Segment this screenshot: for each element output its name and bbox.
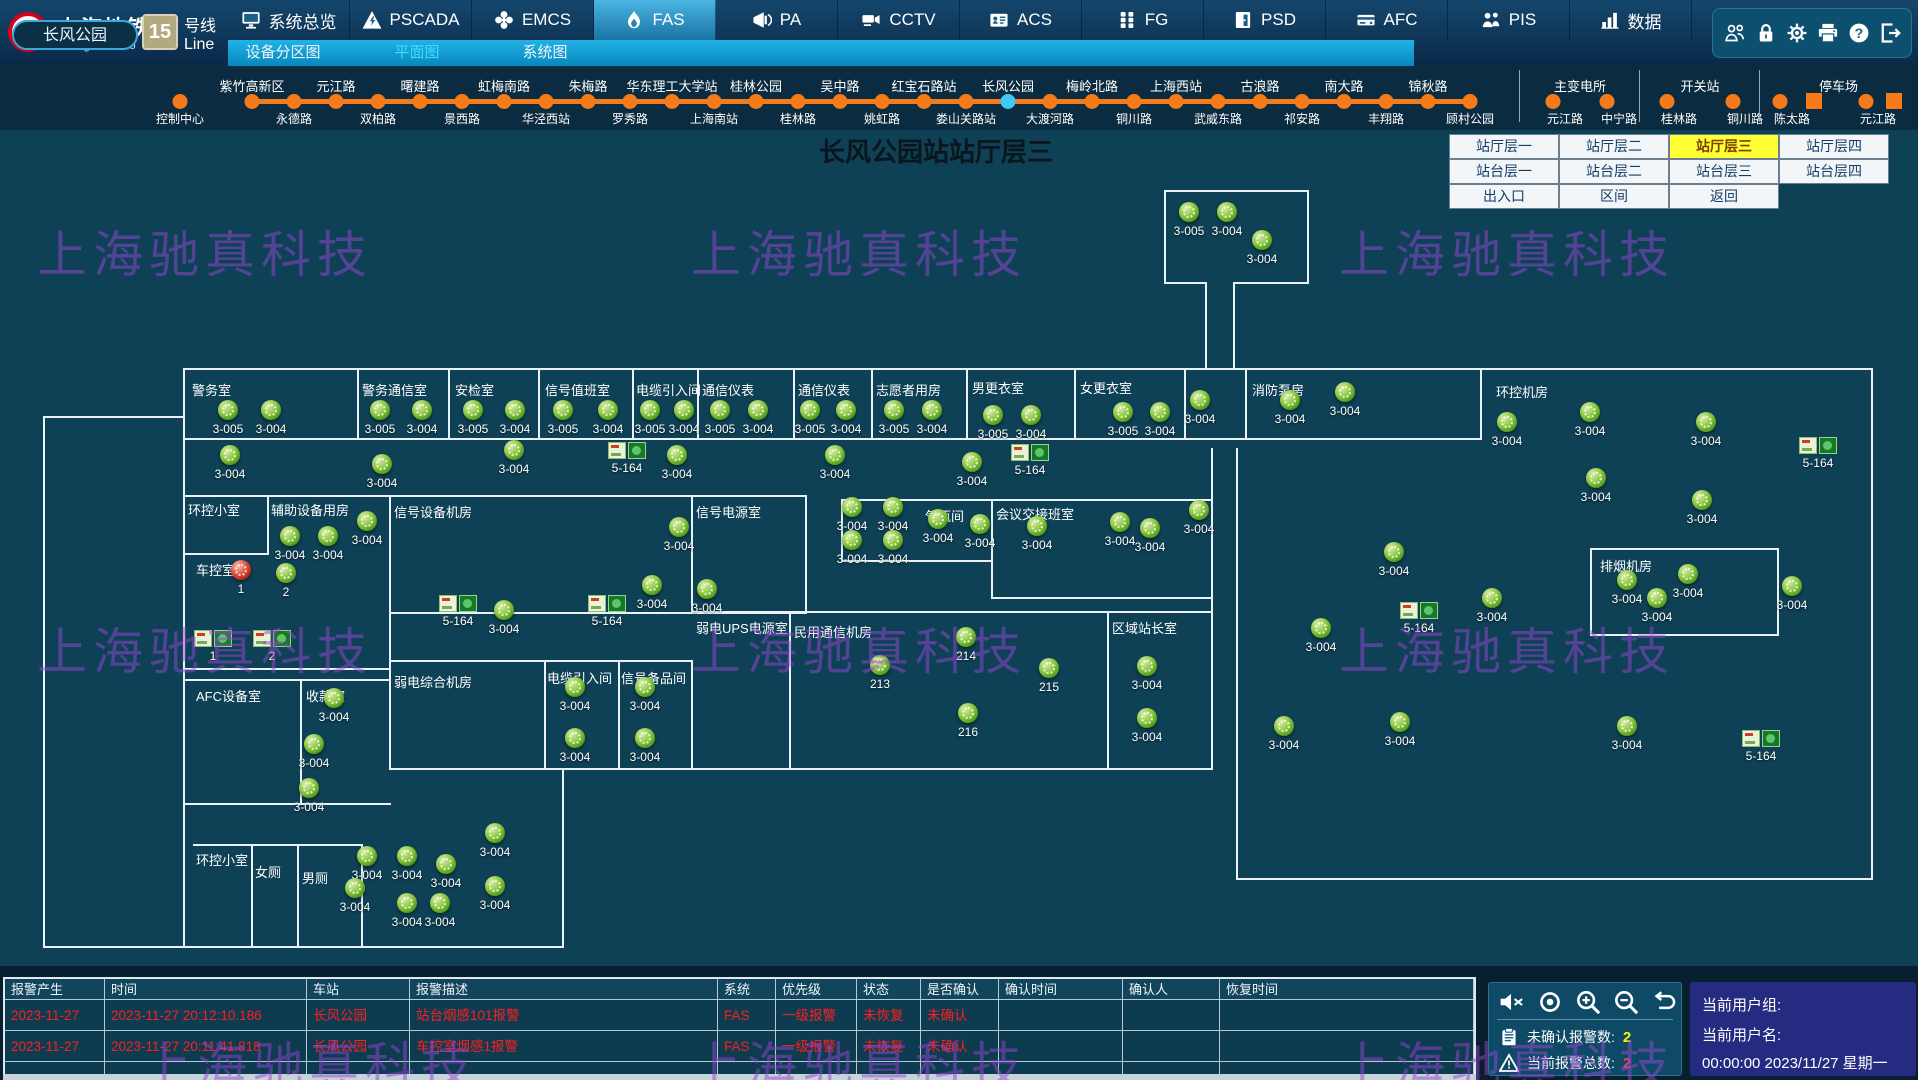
line-label-cn: 号线 [184, 12, 216, 36]
detector-label: 3-004 [1009, 538, 1065, 552]
facility-dot[interactable] [1726, 94, 1741, 109]
smoke-detector[interactable] [836, 400, 856, 420]
station-dot-3[interactable] [371, 94, 386, 109]
wall [389, 660, 693, 662]
detector-label: 3-004 [1599, 738, 1655, 752]
current-station-pill[interactable]: 长风公园 [12, 20, 138, 50]
smoke-detector[interactable] [640, 400, 660, 420]
device-module[interactable] [1400, 602, 1438, 619]
smoke-detector[interactable] [1110, 512, 1130, 532]
station-dot-20[interactable] [1085, 94, 1100, 109]
alarm-control-panel: 未确认报警数:2当前报警总数:2 [1488, 982, 1682, 1076]
smoke-detector[interactable] [983, 405, 1003, 425]
smoke-detector[interactable] [1782, 576, 1802, 596]
subnav-tab-active[interactable]: 平面图 [394, 40, 439, 66]
room-label: 女厕 [255, 862, 281, 881]
smoke-detector[interactable] [1189, 500, 1209, 520]
zoom-in-icon[interactable] [1575, 989, 1601, 1015]
wall [183, 679, 391, 681]
smoke-detector[interactable] [261, 400, 281, 420]
smoke-detector[interactable] [345, 878, 365, 898]
detector-label: 216 [940, 725, 996, 739]
watermark: 上海驰真科技 [37, 612, 373, 684]
wall [1590, 634, 1779, 636]
detector-label: 3-004 [467, 845, 523, 859]
room-label: 志愿者用房 [876, 380, 941, 399]
room-label: 安检室 [455, 380, 494, 399]
metro-line [246, 99, 1476, 104]
device-label: 5-164 [1733, 749, 1789, 763]
station-dot-8[interactable] [581, 94, 596, 109]
station-dot-6[interactable] [497, 94, 512, 109]
station-dot-5[interactable] [455, 94, 470, 109]
device-label: 5-164 [430, 614, 486, 628]
detector-label: 3-004 [1317, 404, 1373, 418]
wall [43, 416, 185, 418]
smoke-detector[interactable] [883, 497, 903, 517]
station-dot-24[interactable] [1253, 94, 1268, 109]
station-dot-15[interactable] [875, 94, 890, 109]
table-header-row: 报警产生时间车站报警描述系统优先级状态是否确认确认时间确认人恢复时间 [5, 979, 1474, 1000]
table-cell[interactable] [999, 1000, 1123, 1031]
table-cell[interactable]: 车控室烟感1报警 [410, 1031, 718, 1062]
wall [1871, 368, 1873, 880]
table-cell[interactable]: 长风公园 [307, 1031, 410, 1062]
station-dot-4[interactable] [413, 94, 428, 109]
room-label: 男厕 [302, 868, 328, 887]
smoke-detector[interactable] [825, 445, 845, 465]
wall [1307, 190, 1309, 284]
table-cell[interactable] [1220, 1000, 1474, 1031]
wall [183, 668, 391, 670]
smoke-detector[interactable] [504, 440, 524, 460]
smoke-detector[interactable] [1647, 588, 1667, 608]
smoke-detector[interactable] [842, 530, 862, 550]
station-dot-28[interactable] [1421, 94, 1436, 109]
clipboard-icon [1499, 1027, 1519, 1047]
station-dot-13[interactable] [791, 94, 806, 109]
table-header-cell: 恢复时间 [1220, 979, 1474, 1000]
table-cell[interactable]: 2023-11-27 [5, 1000, 105, 1031]
smoke-detector[interactable] [1274, 716, 1294, 736]
device-module[interactable] [1742, 730, 1780, 747]
device-module[interactable] [1799, 437, 1837, 454]
smoke-detector[interactable] [598, 400, 618, 420]
smoke-detector[interactable] [565, 728, 585, 748]
zoom-out-icon[interactable] [1613, 989, 1639, 1015]
smoke-detector[interactable] [1696, 412, 1716, 432]
detector-label: 2 [258, 585, 314, 599]
wall [389, 495, 807, 497]
room-label: 信号电源室 [696, 502, 761, 521]
smoke-detector[interactable] [280, 526, 300, 546]
smoke-detector[interactable] [357, 511, 377, 531]
users-icon[interactable] [1724, 22, 1746, 44]
current-user-name-label: 当前用户名: [1702, 1024, 1781, 1045]
table-cell[interactable]: 2023-11-27 20:12:10.186 [105, 1000, 307, 1031]
wall [1480, 368, 1482, 440]
wall [43, 946, 564, 948]
watermark: 上海驰真科技 [691, 215, 1027, 287]
counter-value: 2 [1623, 1055, 1631, 1072]
table-cell[interactable]: FAS [718, 1031, 776, 1062]
smoke-detector[interactable] [220, 445, 240, 465]
smoke-detector[interactable] [304, 734, 324, 754]
smoke-detector[interactable] [1617, 570, 1637, 590]
table-header-cell: 车站 [307, 979, 410, 1000]
smoke-detector[interactable] [1179, 202, 1199, 222]
smoke-detector[interactable] [956, 627, 976, 647]
smoke-detector[interactable] [884, 400, 904, 420]
wall [1233, 282, 1309, 284]
smoke-detector[interactable] [883, 530, 903, 550]
smoke-detector[interactable] [1482, 588, 1502, 608]
detector-label: 3-004 [354, 476, 410, 490]
smoke-detector[interactable] [842, 497, 862, 517]
nav-tab-label: PIS [1509, 10, 1536, 30]
table-cell[interactable]: 未恢复 [857, 1000, 921, 1031]
station-dot-27[interactable] [1379, 94, 1394, 109]
nav-tab-label: 数据 [1628, 8, 1662, 33]
detector-label: 3-004 [418, 876, 474, 890]
nav-tab-cctv[interactable]: CCTV [838, 0, 960, 40]
table-cell[interactable]: 未确认 [921, 1000, 999, 1031]
nav-tab-pa[interactable]: PA [716, 0, 838, 40]
detector-label: 3-004 [202, 467, 258, 481]
subnav-tab-item[interactable]: 系统图 [522, 40, 567, 66]
device-module[interactable] [253, 630, 291, 647]
smoke-detector[interactable] [485, 823, 505, 843]
smoke-detector[interactable] [697, 579, 717, 599]
station-dot-7[interactable] [539, 94, 554, 109]
smoke-detector[interactable] [635, 728, 655, 748]
smoke-detector[interactable] [962, 452, 982, 472]
smoke-detector[interactable] [1021, 405, 1041, 425]
detector-label: 3-004 [944, 474, 1000, 488]
detector-label: 3-004 [1119, 678, 1175, 692]
smoke-detector[interactable] [430, 893, 450, 913]
detector-label: 3-004 [1674, 512, 1730, 526]
nav-tab-emcs[interactable]: EMCS [472, 0, 594, 40]
lock-icon[interactable] [1755, 22, 1777, 44]
table-row-0[interactable]: 2023-11-272023-11-27 20:12:10.186长风公园站台烟… [5, 1000, 1474, 1031]
smoke-detector[interactable] [1190, 390, 1210, 410]
detector-label: 3-004 [1262, 412, 1318, 426]
floor-button-1-1[interactable]: 站台层二 [1559, 159, 1669, 184]
nav-tab-pscada[interactable]: PSCADA [350, 0, 472, 40]
detector-label: 3-004 [1119, 730, 1175, 744]
subnav-tab-item[interactable]: 设备分区图 [245, 40, 320, 66]
nav-tab-label: FAS [652, 10, 684, 30]
smoke-detector[interactable] [667, 445, 687, 465]
facility-square[interactable] [1886, 93, 1902, 109]
line-diagram-band: 控制中心紫竹高新区永德路元江路双柏路曙建路景西路虹梅南路华泾西站朱梅路罗秀路华东… [0, 66, 1918, 130]
station-dot-2[interactable] [329, 94, 344, 109]
detector-label: 3-004 [1171, 522, 1227, 536]
logout-icon[interactable] [1879, 22, 1901, 44]
floor-button-1-2[interactable]: 站台层三 [1669, 159, 1779, 184]
table-cell[interactable] [1220, 1031, 1474, 1062]
detector-label: 3-004 [1172, 412, 1228, 426]
smoke-detector[interactable] [463, 400, 483, 420]
eye-icon[interactable] [1537, 989, 1563, 1015]
wall [193, 844, 363, 846]
nav-tab-acs[interactable]: ACS [960, 0, 1082, 40]
room-label: 辅助设备用房 [271, 500, 349, 519]
station-dot-14[interactable] [833, 94, 848, 109]
station-dot-16[interactable] [917, 94, 932, 109]
alarm-table: 报警产生时间车站报警描述系统优先级状态是否确认确认时间确认人恢复时间2023-1… [3, 977, 1476, 1078]
table-bottom-bar [3, 1074, 1476, 1080]
table-cell[interactable]: 一级报警 [776, 1000, 857, 1031]
smoke-detector[interactable] [669, 517, 689, 537]
smoke-detector[interactable] [870, 655, 890, 675]
floor-button-0-2-active[interactable]: 站厅层三 [1669, 134, 1779, 159]
nav-tab-label: 系统总览 [269, 8, 337, 33]
smoke-detector-alarm[interactable] [231, 560, 251, 580]
fan-icon [494, 10, 514, 30]
smoke-detector[interactable] [1390, 712, 1410, 732]
counter-label: 未确认报警数: [1527, 1027, 1615, 1047]
device-module[interactable] [439, 595, 477, 612]
wall [1211, 448, 1213, 770]
smoke-detector[interactable] [1384, 542, 1404, 562]
detector-label: 3-004 [300, 548, 356, 562]
people-icon [1481, 10, 1501, 30]
station-dot-29[interactable] [1463, 94, 1478, 109]
smoke-detector[interactable] [1217, 202, 1237, 222]
detector-label: 3-004 [1092, 534, 1148, 548]
smoke-detector[interactable] [1280, 390, 1300, 410]
smoke-detector[interactable] [1335, 382, 1355, 402]
nav-tab-pis[interactable]: PIS [1448, 0, 1570, 40]
smoke-detector[interactable] [710, 400, 730, 420]
smoke-detector[interactable] [1678, 564, 1698, 584]
watermark: 上海驰真科技 [37, 215, 373, 287]
floor-button-2-2[interactable]: 返回 [1669, 184, 1779, 209]
wall [183, 368, 1873, 370]
station-dot-0[interactable] [245, 94, 260, 109]
data-chart-icon [1600, 10, 1620, 30]
nav-tab-label: ACS [1017, 10, 1052, 30]
flame-icon [624, 10, 644, 30]
detector-label: 3-004 [306, 710, 362, 724]
smoke-detector[interactable] [674, 400, 694, 420]
smoke-detector[interactable] [1039, 658, 1059, 678]
table-header-cell: 是否确认 [921, 979, 999, 1000]
device-module[interactable] [194, 630, 232, 647]
station-dot-10[interactable] [665, 94, 680, 109]
smoke-detector[interactable] [922, 400, 942, 420]
facility-dot[interactable] [1546, 94, 1561, 109]
floor-button-2-1[interactable]: 区间 [1559, 184, 1669, 209]
smoke-detector[interactable] [397, 893, 417, 913]
station-dot-11[interactable] [707, 94, 722, 109]
station-dot-17[interactable] [959, 94, 974, 109]
smoke-detector[interactable] [436, 854, 456, 874]
floor-button-1-0[interactable]: 站台层一 [1449, 159, 1559, 184]
smoke-detector[interactable] [928, 509, 948, 529]
table-cell[interactable] [999, 1031, 1123, 1062]
detector-label: 3-004 [1132, 424, 1188, 438]
nav-tab-label: CCTV [889, 10, 935, 30]
table-cell[interactable]: 未确认 [921, 1031, 999, 1062]
wall [1236, 878, 1873, 880]
smoke-detector[interactable] [1311, 618, 1331, 638]
table-cell[interactable] [1123, 1000, 1220, 1031]
smoke-detector[interactable] [485, 876, 505, 896]
smoke-detector[interactable] [1586, 468, 1606, 488]
smoke-detector[interactable] [1252, 230, 1272, 250]
table-cell[interactable]: 2023-11-27 20:11:41.818 [105, 1031, 307, 1062]
nav-tab-fas[interactable]: FAS [594, 0, 716, 40]
smoke-detector[interactable] [276, 563, 296, 583]
help-icon[interactable]: ? [1848, 22, 1870, 44]
smoke-detector[interactable] [958, 703, 978, 723]
smoke-detector[interactable] [1113, 402, 1133, 422]
room-label: 女更衣室 [1080, 378, 1132, 397]
floor-button-0-3[interactable]: 站厅层四 [1779, 134, 1889, 159]
undo-icon[interactable] [1651, 989, 1677, 1015]
smoke-detector[interactable] [218, 400, 238, 420]
smoke-detector[interactable] [318, 526, 338, 546]
room-label: 通信仪表 [702, 380, 754, 399]
detector-label: 3-004 [1293, 640, 1349, 654]
printer-icon[interactable] [1817, 22, 1839, 44]
table-header-cell: 确认人 [1123, 979, 1220, 1000]
station-dot-21[interactable] [1127, 94, 1142, 109]
smoke-detector[interactable] [494, 600, 514, 620]
nav-tab-psd[interactable]: PSD [1204, 0, 1326, 40]
nav-tab-label: PSD [1261, 10, 1296, 30]
floor-button-0-1[interactable]: 站厅层二 [1559, 134, 1669, 159]
megaphone-icon [752, 10, 772, 30]
detector-label: 3-004 [617, 699, 673, 713]
table-cell[interactable]: 未恢复 [857, 1031, 921, 1062]
smoke-detector[interactable] [357, 846, 377, 866]
station-label: 控制中心 [115, 110, 245, 127]
station-dot-9[interactable] [623, 94, 638, 109]
smoke-detector[interactable] [800, 400, 820, 420]
detector-label: 3-004 [624, 597, 680, 611]
smoke-detector[interactable] [553, 400, 573, 420]
floor-button-2-0[interactable]: 出入口 [1449, 184, 1559, 209]
mute-icon[interactable] [1499, 989, 1525, 1015]
watermark: 上海驰真科技 [1339, 215, 1675, 287]
smoke-detector[interactable] [370, 400, 390, 420]
user-panel: 当前用户组: 当前用户名: 00:00:00 2023/11/27 星期一 [1690, 982, 1916, 1076]
smoke-detector[interactable] [1027, 516, 1047, 536]
nav-tab-label: PSCADA [390, 10, 460, 30]
room-label: 区域站长室 [1112, 618, 1177, 637]
smoke-detector[interactable] [1150, 402, 1170, 422]
smoke-detector[interactable] [748, 400, 768, 420]
table-header-cell: 报警描述 [410, 979, 718, 1000]
smoke-detector[interactable] [372, 454, 392, 474]
grid-icon [1117, 10, 1137, 30]
smoke-detector[interactable] [635, 677, 655, 697]
detector-label: 213 [852, 677, 908, 691]
smoke-detector[interactable] [1497, 412, 1517, 432]
smoke-detector[interactable] [1137, 708, 1157, 728]
table-cell[interactable]: 长风公园 [307, 1000, 410, 1031]
smoke-detector[interactable] [397, 846, 417, 866]
device-module[interactable] [588, 595, 626, 612]
station-dot-25[interactable] [1295, 94, 1310, 109]
smoke-detector[interactable] [642, 575, 662, 595]
table-cell[interactable]: 一级报警 [776, 1031, 857, 1062]
gear-icon[interactable] [1786, 22, 1808, 44]
facility-dot[interactable] [1660, 94, 1675, 109]
nav-tab-fg[interactable]: FG [1082, 0, 1204, 40]
smoke-detector[interactable] [299, 778, 319, 798]
device-label: 5-164 [1002, 463, 1058, 477]
detector-label: 3-004 [1629, 610, 1685, 624]
station-dot-22[interactable] [1169, 94, 1184, 109]
room-label: 信号值班室 [545, 380, 610, 399]
detector-label: 214 [938, 649, 994, 663]
table-cell[interactable]: 站台烟感101报警 [410, 1000, 718, 1031]
nav-tab-afc[interactable]: AFC [1326, 0, 1448, 40]
floor-button-1-3[interactable]: 站台层四 [1779, 159, 1889, 184]
table-cell[interactable]: 2023-11-27 [5, 1031, 105, 1062]
table-row-1[interactable]: 2023-11-272023-11-27 20:11:41.818长风公园车控室… [5, 1031, 1474, 1062]
wall [1236, 768, 1238, 880]
station-dot-26[interactable] [1337, 94, 1352, 109]
facility-dot[interactable] [1859, 94, 1874, 109]
station-dot-19[interactable] [1043, 94, 1058, 109]
device-label: 5-164 [579, 614, 635, 628]
smoke-detector[interactable] [970, 514, 990, 534]
wall [251, 844, 253, 948]
table-cell[interactable]: FAS [718, 1000, 776, 1031]
room-label: 环控机房 [1496, 382, 1548, 401]
device-module[interactable] [1011, 444, 1049, 461]
facility-dot[interactable] [1600, 94, 1615, 109]
facility-square[interactable] [1806, 93, 1822, 109]
station-dot-1[interactable] [287, 94, 302, 109]
smoke-detector[interactable] [1580, 402, 1600, 422]
smoke-detector[interactable] [505, 400, 525, 420]
station-dot-23[interactable] [1211, 94, 1226, 109]
facility-dot[interactable] [1773, 94, 1788, 109]
id-card-icon [989, 10, 1009, 30]
smoke-detector[interactable] [1617, 716, 1637, 736]
station-dot-control-center[interactable] [173, 94, 188, 109]
smoke-detector[interactable] [565, 677, 585, 697]
floor-button-0-0[interactable]: 站厅层一 [1449, 134, 1559, 159]
panel-divider [1497, 1019, 1673, 1020]
table-cell[interactable] [1123, 1031, 1220, 1062]
wall [297, 844, 299, 948]
band-group-title: 开关站 [1680, 76, 1719, 95]
smoke-detector[interactable] [1692, 490, 1712, 510]
nav-tab-label: AFC [1384, 10, 1418, 30]
smoke-detector[interactable] [412, 400, 432, 420]
smoke-detector[interactable] [1137, 656, 1157, 676]
station-dot-12[interactable] [749, 94, 764, 109]
nav-tab-系统总览[interactable]: 系统总览 [228, 0, 350, 40]
device-label: 2 [244, 649, 300, 663]
room-label: 车控室 [196, 560, 235, 579]
station-dot-18-current[interactable] [1001, 94, 1016, 109]
device-module[interactable] [608, 442, 646, 459]
smoke-detector[interactable] [324, 688, 344, 708]
table-header-cell: 报警产生 [5, 979, 105, 1000]
nav-tab-数据[interactable]: 数据 [1570, 0, 1692, 40]
alarm-counter-0: 未确认报警数:2 [1499, 1027, 1631, 1047]
wall [1074, 368, 1076, 440]
